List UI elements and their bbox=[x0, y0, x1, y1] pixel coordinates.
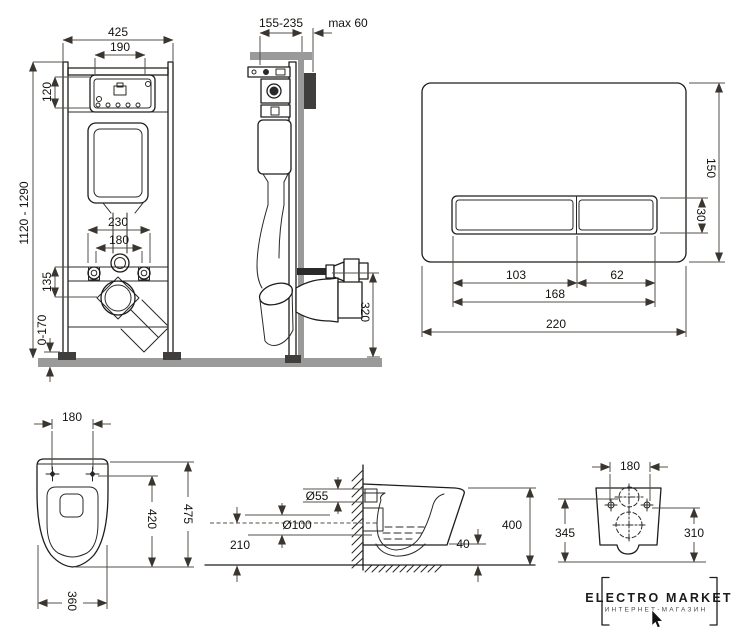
ground-hatch bbox=[205, 565, 535, 572]
logo-subtitle: ИНТЕРНЕТ-МАГАЗИН bbox=[605, 607, 708, 614]
wall-connections bbox=[296, 259, 368, 322]
dimensions: 180 475 420 360 bbox=[34, 410, 195, 611]
mounting-holes bbox=[46, 467, 99, 481]
dim-panel-height-label: 120 bbox=[40, 82, 54, 102]
logo-title: ELECTRO MARKET bbox=[585, 591, 732, 605]
dim-bolts-outer-label: 230 bbox=[108, 215, 128, 229]
right-foot bbox=[163, 352, 181, 360]
dim-drain-offset-label: 135 bbox=[40, 272, 54, 292]
flush-opening bbox=[60, 494, 83, 517]
flush-plate-view: 150 30 103 62 168 220 bbox=[420, 60, 741, 350]
outlet-crosshair bbox=[613, 508, 645, 542]
flush-button-large bbox=[456, 200, 573, 230]
dim-clearance-label: 40 bbox=[456, 537, 470, 551]
dim-inner-width-label: 190 bbox=[110, 40, 130, 54]
dim-outlet-label: Ø100 bbox=[282, 518, 312, 532]
dim-outlet-height-label: 320 bbox=[358, 302, 372, 322]
seat-ring bbox=[47, 487, 98, 557]
cistern-side bbox=[258, 79, 291, 205]
toilet-top-outline bbox=[37, 459, 108, 567]
dim-height-range-label: 1120 - 1290 bbox=[17, 181, 31, 244]
dim-length-label: 475 bbox=[181, 504, 195, 524]
frame-front-view: 425 190 120 1120 - 1290 230 180 135 0-17… bbox=[0, 0, 240, 400]
frame-side-view: 155-235 max 60 320 bbox=[230, 0, 420, 400]
dimensions: 180 345 310 bbox=[555, 459, 706, 562]
inlet-port bbox=[365, 489, 377, 502]
dim-right-height-label: 310 bbox=[684, 526, 704, 540]
flush-plate-side bbox=[304, 73, 316, 109]
dim-hole-span-label: 180 bbox=[620, 459, 640, 473]
dim-bolts-inner-label: 180 bbox=[109, 233, 129, 247]
dim-hole-span-label: 180 bbox=[62, 410, 82, 424]
dim-frame-width-label: 425 bbox=[108, 25, 128, 39]
dim-inlet-label: Ø55 bbox=[306, 489, 329, 503]
technical-drawing-canvas: 425 190 120 1120 - 1290 230 180 135 0-17… bbox=[0, 0, 741, 640]
dim-plate-width-label: 220 bbox=[546, 317, 566, 331]
dim-feet-range-label: 0-170 bbox=[35, 314, 49, 345]
dim-plate-height-label: 150 bbox=[704, 158, 718, 178]
dim-total-height-label: 400 bbox=[502, 518, 522, 532]
dim-button-height-label: 30 bbox=[694, 208, 708, 222]
left-foot bbox=[58, 352, 76, 360]
toilet-rear-view: 180 345 310 ELECTRO MARKET ИНТЕРНЕТ-МАГА… bbox=[540, 430, 741, 640]
toilet-side-view: Ø55 Ø100 210 400 40 bbox=[200, 440, 540, 620]
dim-button-left-label: 103 bbox=[506, 268, 526, 282]
dim-buttons-total-label: 168 bbox=[545, 287, 565, 301]
ceiling-bracket bbox=[250, 52, 312, 60]
water-level bbox=[383, 527, 424, 539]
dim-left-height-label: 345 bbox=[555, 526, 575, 540]
plate-outline bbox=[422, 83, 686, 262]
drain-assembly bbox=[97, 277, 167, 352]
dim-button-right-label: 62 bbox=[610, 268, 624, 282]
dim-width-label: 360 bbox=[65, 591, 79, 611]
dim-outlet-height-label: 210 bbox=[230, 538, 250, 552]
toilet-rear-outline bbox=[596, 484, 661, 554]
dim-wall-max-label: max 60 bbox=[328, 16, 368, 30]
dim-inner-length-label: 420 bbox=[145, 509, 159, 529]
dim-depth-range-label: 155-235 bbox=[259, 16, 303, 30]
access-panel bbox=[90, 75, 155, 112]
flush-button-small bbox=[579, 200, 653, 230]
wall-hatch bbox=[352, 465, 363, 570]
brand-logo: ELECTRO MARKET ИНТЕРНЕТ-МАГАЗИН bbox=[585, 578, 732, 628]
flush-buttons bbox=[452, 196, 657, 234]
